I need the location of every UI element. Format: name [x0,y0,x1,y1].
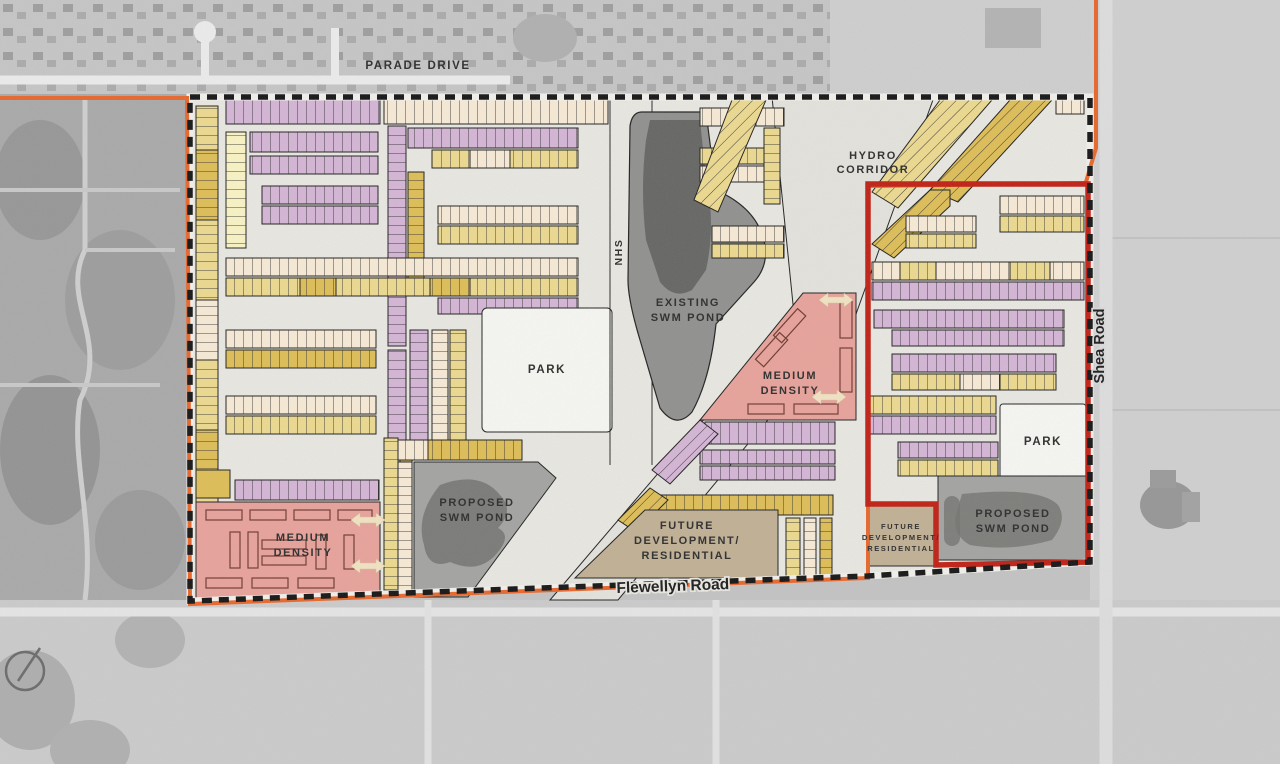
label-medium-density-west-1: MEDIUM [276,532,330,544]
label-medium-density-west-2: DENSITY [274,547,333,559]
label-proposed-pond-east-2: SWM POND [976,523,1051,535]
legend: LEGEND Stittsville South Urban Expansion… [0,645,1280,764]
plan-area [190,97,1090,601]
label-future-dev-east-1: FUTURE [881,522,921,531]
label-shea-road: Shea Road [1092,309,1108,384]
label-medium-density-east-2: DENSITY [761,385,820,397]
label-hydro-1: HYDRO [849,150,897,162]
label-future-dev-center-3: RESIDENTIAL [642,550,733,562]
label-nhs: NHS [613,239,625,266]
north-arrow [0,645,52,697]
label-future-dev-east-3: RESIDENTIAL [867,544,935,553]
built-form-diagram: PARADE DRIVE HYDRO CORRIDOR NHS EXISTING… [0,0,1280,764]
label-future-dev-east-2: DEVELOPMENT/ [862,533,940,542]
label-future-dev-center-2: DEVELOPMENT/ [634,535,740,547]
label-future-dev-center-1: FUTURE [660,520,714,532]
label-park-west: PARK [528,364,566,376]
label-park-east: PARK [1024,436,1062,448]
label-existing-pond-2: SWM POND [651,312,726,324]
label-medium-density-east-1: MEDIUM [763,370,817,382]
label-existing-pond-1: EXISTING [656,297,720,309]
label-parade-drive: PARADE DRIVE [365,60,470,72]
label-hydro-2: CORRIDOR [837,164,910,176]
label-proposed-pond-west-1: PROPOSED [439,497,514,509]
label-proposed-pond-west-2: SWM POND [440,512,515,524]
label-proposed-pond-east-1: PROPOSED [975,508,1050,520]
